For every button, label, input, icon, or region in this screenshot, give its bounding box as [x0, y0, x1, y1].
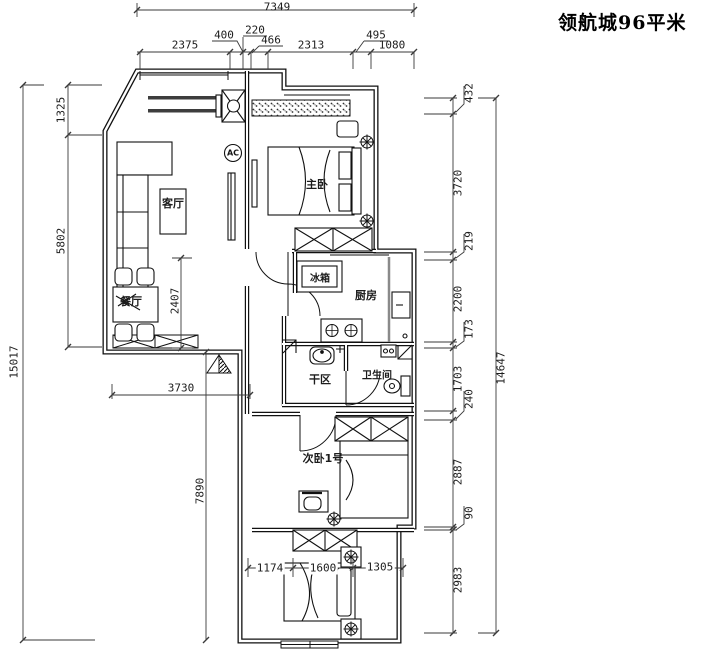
dim-bottom-1600: 1600	[309, 562, 338, 575]
dim-top-1080: 1080	[379, 39, 406, 52]
bedroom2-door	[300, 415, 336, 451]
bed2	[340, 441, 408, 518]
dim-bottom-7890: 7890	[194, 478, 207, 505]
hall-door	[256, 252, 288, 284]
dim-right-2983: 2983	[452, 567, 465, 594]
dim-right-2200: 2200	[452, 286, 465, 313]
dim-bottom-1305: 1305	[366, 561, 395, 574]
dining-chair	[137, 324, 154, 341]
dim-right-90: 90	[463, 506, 476, 519]
dim-top-400: 400	[214, 29, 234, 42]
dining-chair	[115, 324, 132, 341]
sofa-chaise	[117, 142, 172, 175]
ac-label: AC	[227, 149, 239, 158]
side-panel	[252, 160, 257, 207]
dining-chair	[115, 268, 132, 285]
toilet-tank	[401, 376, 410, 396]
dim-top-466: 466	[261, 34, 281, 47]
room-label-master: 主卧	[306, 176, 328, 192]
stool	[337, 121, 358, 137]
room-label-kitchen: 厨房	[355, 287, 377, 303]
floor-plan-page: 领航城96平米 7349 2375 400 220 466 2313 495 1…	[0, 0, 720, 670]
faucet	[336, 346, 344, 353]
floor-plan-svg	[0, 0, 720, 670]
dim-right-219: 219	[463, 231, 476, 251]
entry-cabinet-bar	[148, 96, 218, 100]
light-symbol	[327, 512, 342, 527]
room-label-bath: 卫生间	[362, 367, 392, 382]
dim-left-total: 15017	[8, 345, 21, 378]
dimension-lines	[20, 3, 499, 643]
dim-top-2313: 2313	[298, 39, 325, 52]
laundry-drum	[228, 100, 240, 112]
dim-left-2407: 2407	[169, 288, 182, 315]
room-label-fridge: 冰箱	[310, 270, 330, 285]
dim-top-total: 7349	[264, 1, 291, 14]
room-label-bedroom2: 次卧1号	[303, 450, 344, 466]
dim-right-3720: 3720	[452, 170, 465, 197]
light-symbol	[360, 214, 375, 229]
pillow3	[337, 568, 351, 616]
dim-bottom-1174: 1174	[256, 562, 285, 575]
dim-right-173: 173	[463, 319, 476, 339]
dim-right-2887: 2887	[452, 459, 465, 486]
dim-left-5802: 5802	[55, 228, 68, 255]
plan-title: 领航城96平米	[558, 8, 708, 35]
room-label-living: 客厅	[162, 195, 184, 211]
desk-chair	[304, 497, 321, 510]
light-symbol	[360, 135, 375, 150]
north-arrow-icon	[207, 355, 231, 373]
dim-bottom-3730: 3730	[168, 382, 195, 395]
dim-top-2375: 2375	[172, 39, 199, 52]
dim-right-432: 432	[463, 83, 476, 103]
pillow	[339, 152, 351, 179]
room-label-dry: 干区	[309, 371, 331, 387]
headboard	[352, 148, 361, 214]
dining-chair	[137, 268, 154, 285]
dim-left-1325: 1325	[55, 97, 68, 124]
dim-right-240: 240	[463, 389, 476, 409]
room-label-dining: 餐厅	[120, 293, 142, 309]
dim-right-total: 14647	[495, 351, 508, 384]
entry-cabinet-bar2	[148, 109, 218, 113]
shower-corner	[398, 345, 412, 359]
bay-window-stipple	[252, 100, 350, 116]
pillow	[339, 184, 351, 211]
